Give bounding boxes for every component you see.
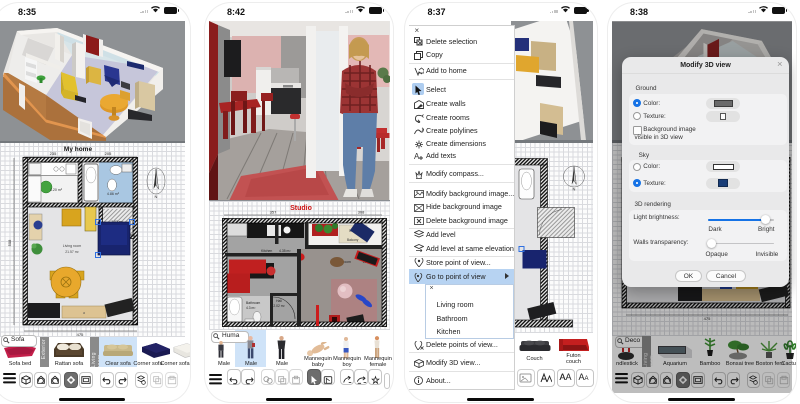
svg-text:21.57 m²: 21.57 m² xyxy=(65,250,79,254)
svg-text:235: 235 xyxy=(50,151,57,156)
svg-text:My home: My home xyxy=(64,146,93,153)
svg-text:508: 508 xyxy=(7,239,12,246)
svg-text:Living room: Living room xyxy=(63,244,82,248)
svg-text:308: 308 xyxy=(358,209,365,214)
svg-text:Bathroom: Bathroom xyxy=(246,301,261,305)
svg-text:4.20 m²: 4.20 m² xyxy=(50,188,63,192)
svg-text:4.3 m²: 4.3 m² xyxy=(246,306,256,310)
svg-text:a: a xyxy=(83,311,85,315)
svg-text:Studio: Studio xyxy=(290,205,312,212)
svg-text:N: N xyxy=(572,186,575,191)
svg-text:Hall: Hall xyxy=(276,299,282,303)
svg-text:N: N xyxy=(155,194,158,199)
svg-text:205: 205 xyxy=(105,151,112,156)
svg-text:A: A xyxy=(414,152,420,161)
svg-text:2.02 m²: 2.02 m² xyxy=(273,304,285,308)
svg-text:4.35 m²: 4.35 m² xyxy=(279,249,291,253)
svg-text:Balcony: Balcony xyxy=(347,238,359,242)
svg-text:357: 357 xyxy=(270,209,277,214)
svg-text:4.86 m²: 4.86 m² xyxy=(107,192,120,196)
svg-text:Kitchen: Kitchen xyxy=(261,249,272,253)
